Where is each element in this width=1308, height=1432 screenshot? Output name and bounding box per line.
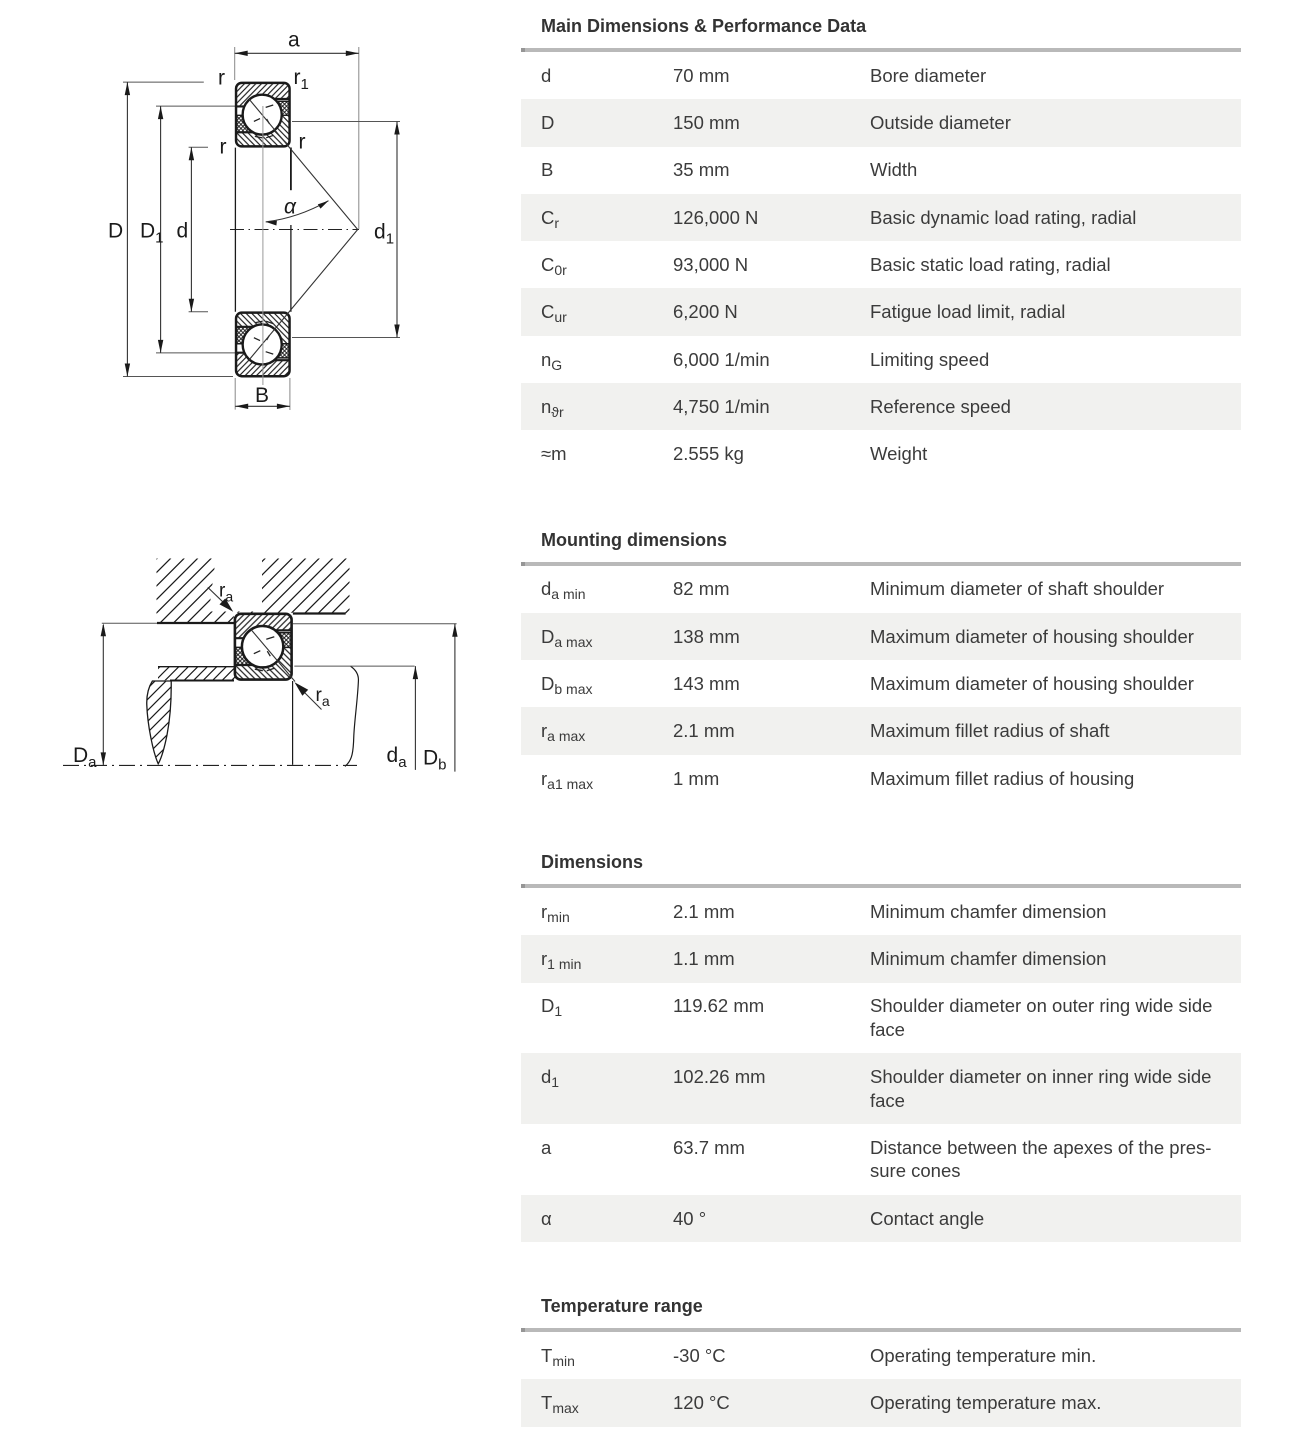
svg-text:D1: D1 bbox=[140, 220, 164, 247]
svg-text:r: r bbox=[218, 67, 225, 90]
svg-text:d1: d1 bbox=[374, 221, 394, 248]
svg-text:da: da bbox=[387, 744, 408, 771]
svg-text:d: d bbox=[177, 220, 189, 243]
svg-text:Db: Db bbox=[423, 747, 447, 774]
svg-text:Da: Da bbox=[73, 744, 97, 771]
svg-text:α: α bbox=[284, 196, 297, 219]
svg-text:D: D bbox=[108, 220, 123, 243]
svg-text:r1: r1 bbox=[294, 66, 309, 93]
svg-text:a: a bbox=[288, 29, 300, 52]
svg-text:ra: ra bbox=[316, 685, 330, 709]
svg-text:B: B bbox=[255, 384, 269, 407]
svg-text:r: r bbox=[299, 131, 306, 154]
svg-text:r: r bbox=[220, 136, 227, 159]
